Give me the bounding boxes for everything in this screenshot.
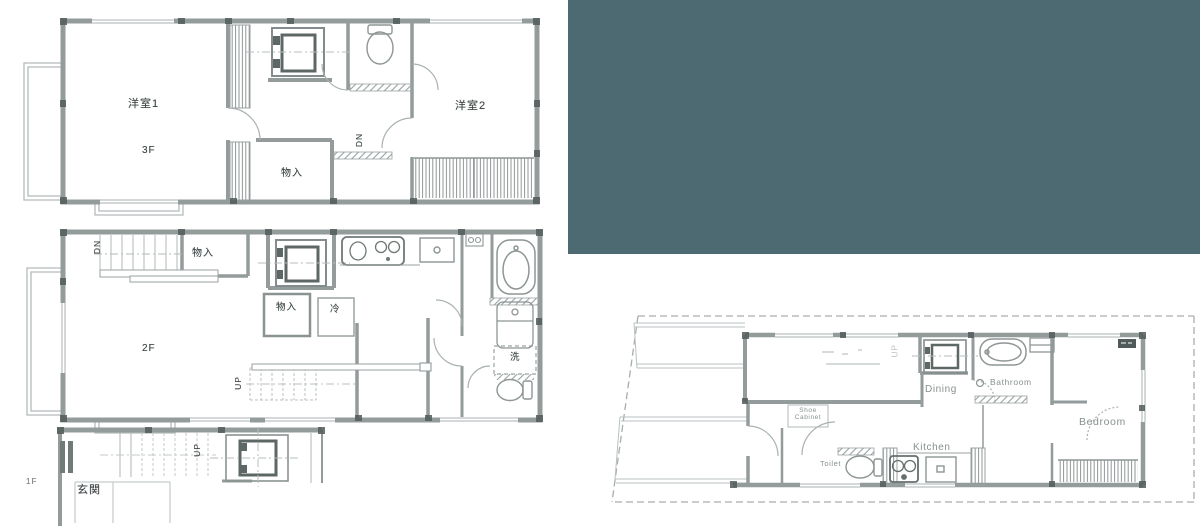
room-label-monoire-3f: 物入 [281, 164, 303, 179]
teal-overlay [568, 0, 1200, 254]
bath-door-knob [977, 380, 984, 387]
pier-hatch-right [971, 448, 985, 485]
room-label-shoe-cabinet: Shoe Cabinet [789, 407, 827, 421]
parking-outline [615, 417, 748, 483]
room-label-genkan: 玄関 [77, 481, 101, 497]
shoe-cabinet-line1: Shoe [799, 407, 817, 414]
stairs-up-label-1f: UP [192, 443, 202, 457]
stair-hatch-lower-3f [230, 142, 250, 200]
balcony-left-2f [27, 268, 63, 415]
plan-2f [0, 218, 560, 434]
toilet-icon-2f [497, 380, 532, 401]
terrace-outline [634, 323, 745, 368]
floorplan-scan-page: 洋室1 3F 物入 洋室2 DN DN 物入 物入 冷 2F 洗 UP 1F 玄… [0, 0, 1200, 526]
stairs-up-label-site: UP [890, 344, 900, 357]
room-label-fridge: 冷 [330, 301, 341, 315]
balcony-left-3f [24, 63, 63, 200]
entry-door-1f [60, 441, 73, 473]
elevator-icon-3f [246, 28, 352, 76]
room-label-bathroom: Bathroom [990, 377, 1032, 387]
room-label-kitchen: Kitchen [913, 442, 951, 453]
kitchen-unit-2f [340, 237, 420, 265]
elevator-icon-2f [258, 240, 350, 286]
stairs-dn-label-2f: DN [92, 240, 102, 254]
sill-toilet-site [838, 448, 874, 455]
room-label-dining: Dining [925, 384, 957, 395]
vanity-icon-2f [497, 302, 533, 348]
bathtub-icon-2f [497, 240, 535, 294]
floor-label-1f: 1F [26, 477, 37, 486]
door-arcs-3f [228, 64, 438, 148]
faded-living-text [822, 350, 880, 364]
room-label-laundry: 洗 [510, 349, 521, 363]
toilet-icon-site [846, 456, 882, 478]
sill-bath-site [975, 396, 1027, 403]
bathtub-icon-site [980, 339, 1026, 365]
plan-1f [0, 425, 340, 526]
room-label-toilet: Toilet [820, 459, 841, 468]
stairs-up-2f [246, 363, 431, 400]
stairs-up-label-2f: UP [233, 376, 243, 390]
room-label-yoshitsu1: 洋室1 [128, 95, 159, 111]
elevator-icon-1f [210, 427, 300, 487]
room-label-bedroom: Bedroom [1079, 416, 1126, 428]
stairs-dn-label-3f: DN [354, 133, 364, 147]
walls-2f [63, 232, 540, 420]
room-label-yoshitsu2: 洋室2 [455, 97, 486, 113]
bedroom-badge [1118, 339, 1136, 348]
toilet-icon-3f [367, 25, 393, 64]
elevator-icon-site [912, 340, 978, 373]
stair-hatch-upper-3f [230, 25, 250, 108]
walls-1f [57, 430, 322, 526]
sill-hall-3f [334, 152, 392, 159]
shoe-cabinet-line2: Cabinet [795, 414, 822, 421]
sill-toilet-3f [350, 84, 412, 91]
sink-icon-site [926, 457, 956, 482]
closet-hatch-room2-3f [414, 158, 534, 198]
wall-joints-2f [60, 229, 543, 422]
closet-hatch-bedroom [1058, 460, 1138, 482]
room-label-monoire-2f-mid: 物入 [276, 299, 297, 313]
washbasin-2f [420, 238, 454, 262]
floor-label-2f: 2F [142, 343, 156, 354]
floor-label-3f: 3F [142, 145, 156, 156]
faucet-fixture-2f [466, 234, 483, 246]
room-label-monoire-2f-top: 物入 [192, 244, 214, 259]
sill-laundry-2f [494, 374, 534, 380]
